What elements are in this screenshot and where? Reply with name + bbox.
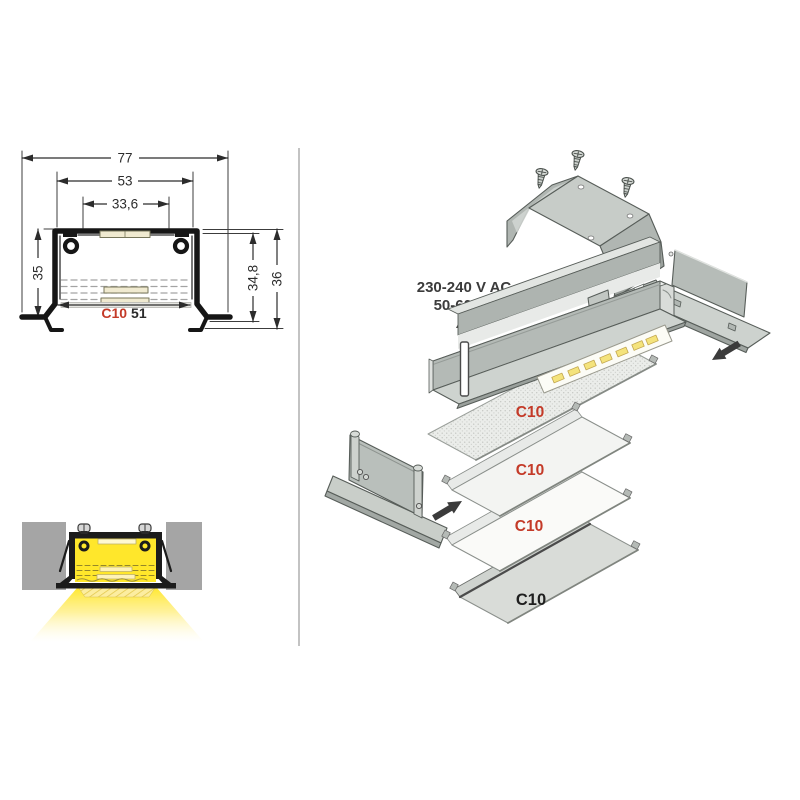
led-strip-mid — [104, 287, 148, 293]
diffuser-window — [79, 588, 155, 597]
left-cap-screw-top-left — [351, 431, 360, 437]
cover-label-1: C10 — [516, 404, 544, 421]
right-cap-stud — [669, 252, 673, 256]
dim-33-6-label: 33,6 — [112, 197, 138, 212]
cover-label-3: C10 — [515, 518, 543, 535]
left-cap-screw-top-right — [414, 465, 423, 471]
cover-label-4: C10 — [516, 591, 546, 609]
hood-hole-2 — [627, 214, 633, 218]
cover-code-text: C10 — [101, 305, 127, 321]
profile-left-end — [429, 359, 433, 393]
cover-label-2: C10 — [516, 462, 544, 479]
exploded-view: 230-240 V AC 50-60 Hz — [325, 150, 770, 623]
left-cap-screw-1 — [357, 469, 362, 474]
install-flange — [56, 583, 176, 589]
hood-hole-3 — [588, 236, 594, 240]
install-illustration — [22, 522, 204, 642]
screw-icon-2 — [569, 150, 584, 172]
left-cap-screw-3 — [416, 503, 421, 508]
screw-channel-left — [65, 240, 77, 252]
dim-34-8-label: 34,8 — [246, 265, 261, 291]
profile-foot-right — [190, 317, 207, 330]
dim-36-label: 36 — [270, 271, 285, 286]
install-strip-mid — [100, 567, 132, 572]
power-cable — [461, 342, 469, 396]
arrow-icon-left-cap — [432, 501, 462, 521]
diagram-page: 77 53 33,6 35 34,8 36 — [0, 0, 800, 800]
cross-section-drawing: 77 53 33,6 35 34,8 36 — [22, 150, 285, 330]
hood-hole-1 — [578, 185, 584, 189]
end-cap-left — [325, 431, 447, 548]
left-cap-screw-2 — [363, 474, 368, 479]
screw-icon-3 — [619, 177, 634, 199]
install-wall-right — [156, 532, 162, 579]
cover-size-label: C1051 — [101, 305, 146, 321]
dim-35-label: 35 — [31, 265, 46, 280]
install-led-strip — [98, 539, 136, 544]
left-cap-boss-right — [414, 467, 422, 518]
cover-width-text: 51 — [131, 305, 147, 321]
ceiling-block-right — [166, 522, 202, 590]
profile-foot-left — [45, 317, 62, 330]
diagram-canvas: 77 53 33,6 35 34,8 36 — [0, 0, 800, 800]
dim-77-label: 77 — [117, 151, 132, 166]
screw-icon-1 — [533, 168, 548, 190]
install-wall-left — [69, 532, 75, 579]
screw-channel-left-base — [63, 230, 77, 237]
extension-lines — [22, 151, 283, 329]
ceiling-block-left — [22, 522, 66, 590]
dim-53-label: 53 — [117, 174, 132, 189]
screw-channel-right — [175, 240, 187, 252]
screw-channel-right-base — [175, 230, 189, 237]
